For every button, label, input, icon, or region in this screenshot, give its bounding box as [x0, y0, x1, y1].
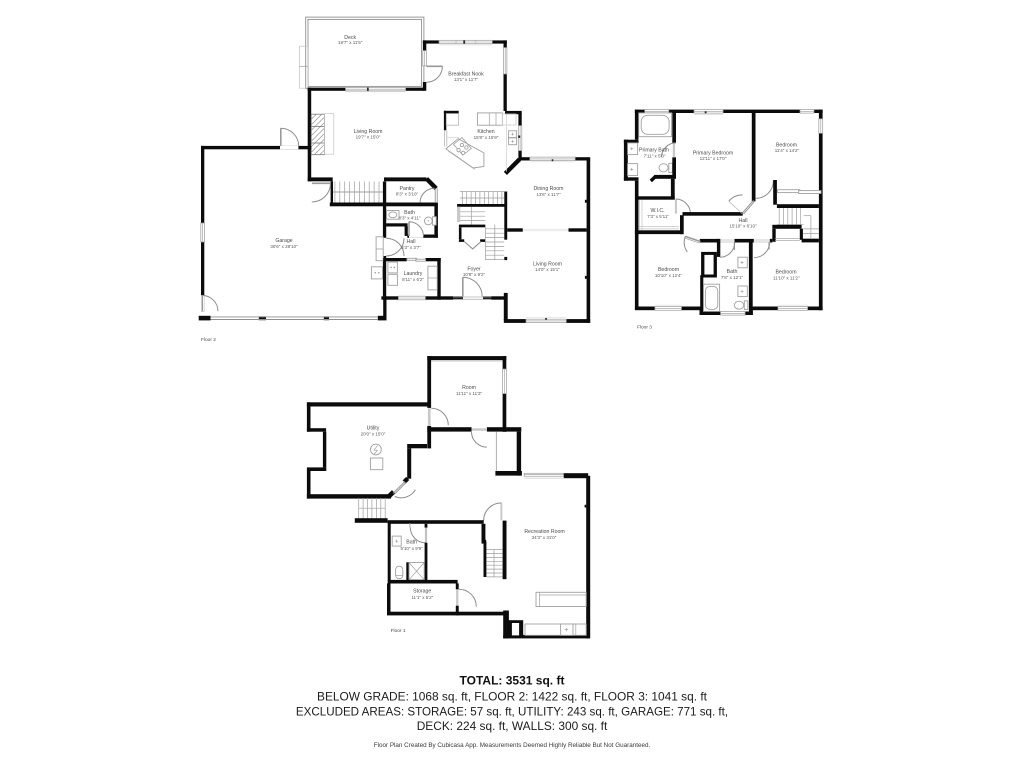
svg-text:7'3" x 5'11": 7'3" x 5'11" — [647, 214, 669, 219]
svg-text:11'4" x 14'2": 11'4" x 14'2" — [775, 148, 800, 153]
svg-text:11'1" x 5'2": 11'1" x 5'2" — [411, 595, 433, 600]
svg-text:19'7" x 11'5": 19'7" x 11'5" — [338, 40, 363, 45]
svg-text:Floor 1: Floor 1 — [391, 628, 406, 634]
svg-text:34'3" x 31'0": 34'3" x 31'0" — [532, 535, 557, 540]
svg-text:5'10" x 9'9": 5'10" x 9'9" — [401, 546, 424, 551]
svg-text:7'8" x 12'1": 7'8" x 12'1" — [721, 275, 744, 280]
svg-text:20'0" x 15'0": 20'0" x 15'0" — [361, 431, 386, 436]
svg-text:13'6" x 11'7": 13'6" x 11'7" — [536, 192, 561, 197]
svg-text:11'10" x 11'2": 11'10" x 11'2" — [773, 276, 800, 281]
svg-text:19'7" x 15'0": 19'7" x 15'0" — [356, 135, 381, 140]
svg-text:Floor 2: Floor 2 — [201, 337, 216, 343]
svg-text:8'3" x 3'7": 8'3" x 3'7" — [401, 245, 421, 250]
svg-text:TOTAL: 3531 sq. ft: TOTAL: 3531 sq. ft — [460, 674, 565, 688]
svg-text:EXCLUDED AREAS: STORAGE: 57 sq: EXCLUDED AREAS: STORAGE: 57 sq. ft, UTIL… — [296, 705, 728, 718]
svg-text:10'8" x 9'2": 10'8" x 9'2" — [463, 272, 486, 277]
svg-text:11'11" x 11'3": 11'11" x 11'3" — [456, 391, 483, 396]
svg-text:Floor Plan Created By Cubicasa: Floor Plan Created By Cubicasa App. Meas… — [374, 742, 651, 749]
svg-text:7'11" x 5'0": 7'11" x 5'0" — [644, 154, 666, 159]
svg-text:8'11" x 6'2": 8'11" x 6'2" — [402, 277, 424, 282]
svg-text:14'0" x 15'1": 14'0" x 15'1" — [535, 267, 560, 272]
svg-text:13'1" x 11'7": 13'1" x 11'7" — [454, 77, 479, 82]
svg-text:8'3" x 3'10": 8'3" x 3'10" — [396, 192, 419, 197]
svg-text:Bath: Bath — [406, 539, 417, 545]
svg-text:Recreation Room: Recreation Room — [524, 529, 564, 535]
svg-text:15'8" x 15'9": 15'8" x 15'9" — [474, 135, 499, 140]
svg-text:12'11" x 17'0": 12'11" x 17'0" — [700, 156, 727, 161]
svg-text:BELOW GRADE: 1068 sq. ft, FLOO: BELOW GRADE: 1068 sq. ft, FLOOR 2: 1422 … — [317, 689, 708, 703]
svg-text:10'10" x 12'4": 10'10" x 12'4" — [655, 273, 683, 278]
svg-text:Storage: Storage — [413, 588, 431, 594]
svg-text:30'6" x 28'10": 30'6" x 28'10" — [270, 244, 298, 249]
svg-text:8'3" x 4'11": 8'3" x 4'11" — [399, 216, 421, 221]
svg-text:Floor 3: Floor 3 — [637, 324, 652, 330]
svg-text:15'10" x 6'10": 15'10" x 6'10" — [729, 224, 757, 229]
svg-text:DECK: 224 sq. ft, WALLS: 300 s: DECK: 224 sq. ft, WALLS: 300 sq. ft — [417, 719, 608, 733]
